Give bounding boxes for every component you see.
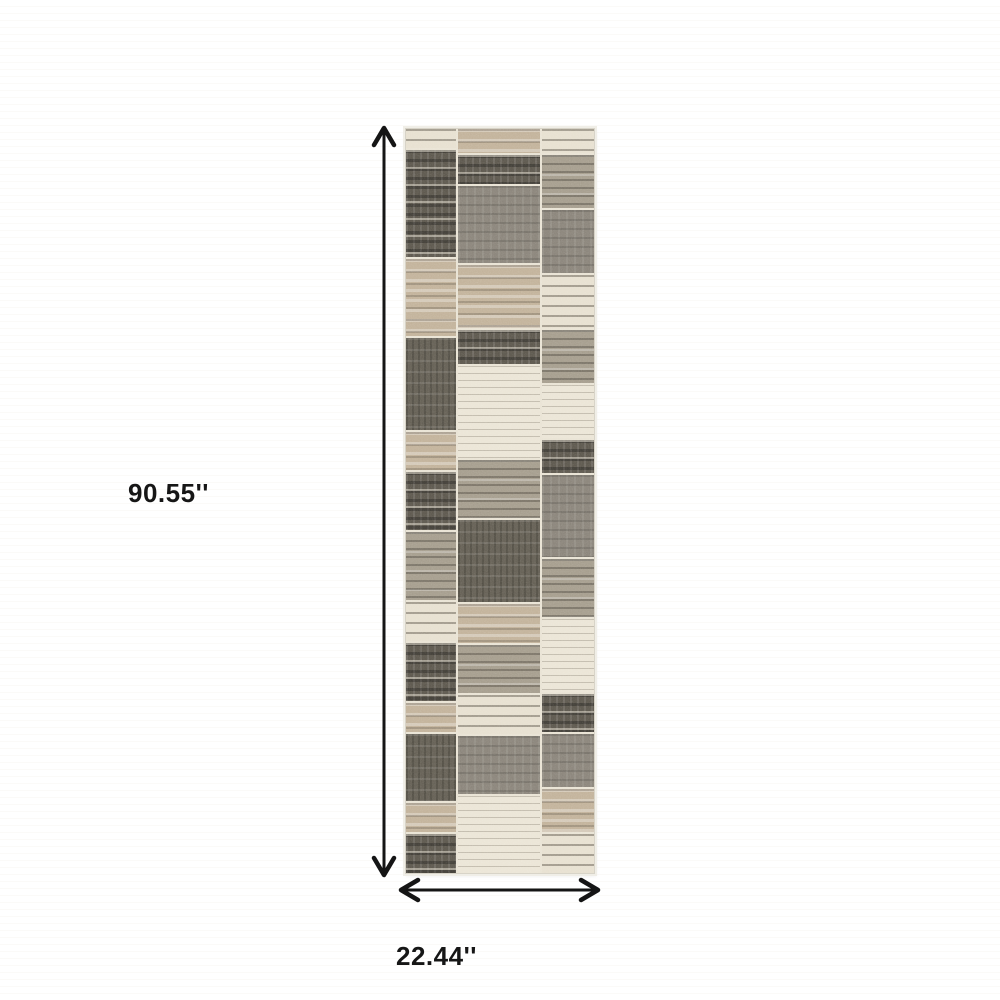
rug-patch	[406, 432, 456, 471]
height-dimension-label: 90.55''	[128, 478, 209, 509]
rug-patch	[542, 619, 594, 691]
product-dimension-image: 90.55'' 22.44''	[0, 0, 1000, 1000]
rug-patch	[542, 330, 594, 383]
rug-patch	[458, 796, 541, 873]
rug-patch	[406, 643, 456, 701]
rug-patch	[458, 695, 541, 734]
rug-patch	[542, 475, 594, 557]
rug-patch	[406, 472, 456, 530]
rug-patch	[406, 602, 456, 641]
rug-patch	[542, 210, 594, 273]
rug-patch	[458, 186, 541, 263]
rug-column	[406, 129, 456, 873]
rug-patch	[406, 834, 456, 873]
rug-patch	[406, 259, 456, 336]
rug-patch	[458, 366, 541, 458]
rug-patch	[406, 338, 456, 430]
rug-patch	[458, 520, 541, 602]
rug-patch	[542, 440, 594, 474]
rug-column	[458, 129, 541, 873]
rug-patch	[406, 703, 456, 732]
rug-patch	[542, 559, 594, 617]
height-dimension-arrow	[366, 120, 402, 880]
rug-patch	[406, 803, 456, 832]
rug-patch	[458, 265, 541, 328]
rug-patch	[458, 645, 541, 693]
rug-patch	[542, 834, 594, 873]
rug-image	[405, 128, 595, 874]
rug-patch	[458, 155, 541, 184]
rug-patch	[542, 385, 594, 438]
rug-patch	[458, 330, 541, 364]
width-dimension-arrow	[393, 872, 605, 908]
rug-patch	[458, 736, 541, 794]
rug-patch	[406, 532, 456, 600]
rug-patch	[542, 129, 594, 153]
rug-patch	[458, 129, 541, 153]
rug-patch	[542, 155, 594, 208]
width-dimension-label: 22.44''	[396, 941, 477, 972]
rug-patch	[542, 734, 594, 787]
rug-patch	[458, 604, 541, 643]
rug-patch	[542, 275, 594, 328]
rug-patch	[542, 694, 594, 733]
rug-patchwork	[406, 129, 594, 873]
rug-column	[542, 129, 594, 873]
rug-patch	[406, 150, 456, 256]
rug-patch	[406, 734, 456, 802]
rug-patch	[458, 460, 541, 518]
rug-patch	[542, 789, 594, 832]
rug-patch	[406, 129, 456, 148]
